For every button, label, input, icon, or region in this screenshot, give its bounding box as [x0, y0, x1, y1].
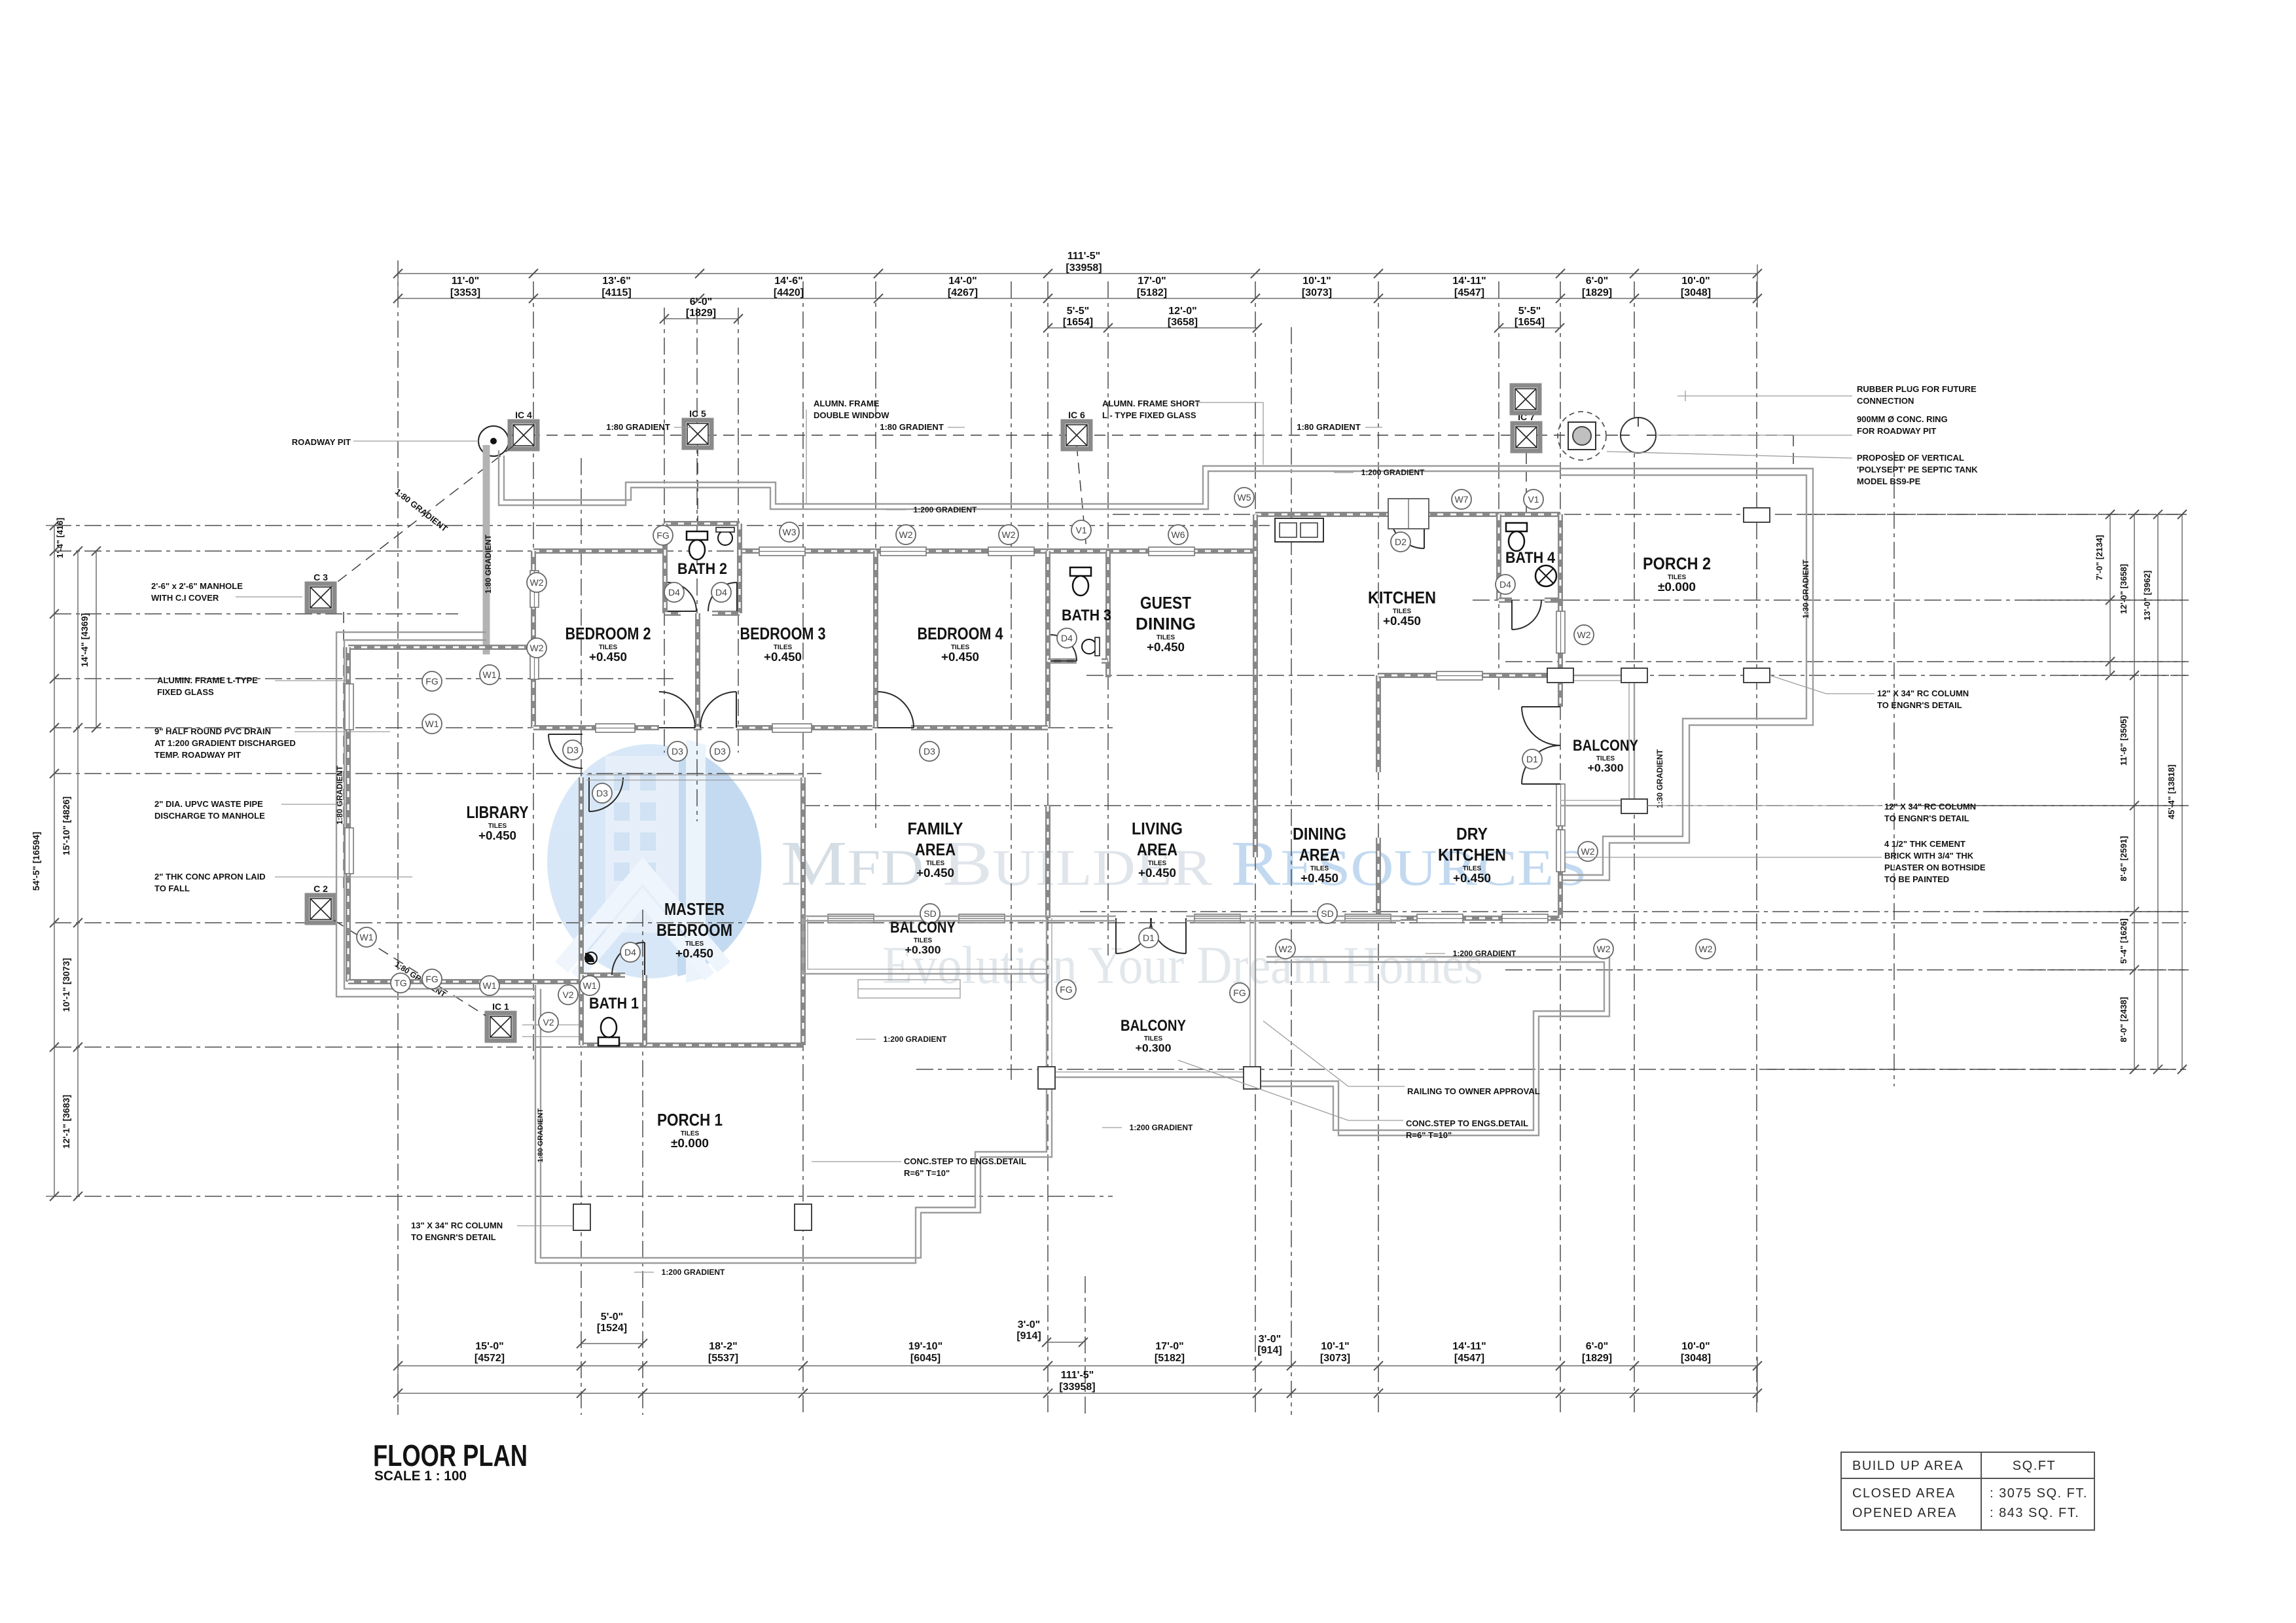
svg-text:W1: W1 [360, 932, 374, 942]
svg-text:17'-0": 17'-0" [1138, 276, 1166, 287]
svg-text:6'-0": 6'-0" [690, 296, 713, 308]
svg-text:KITCHEN: KITCHEN [1438, 845, 1506, 865]
svg-text:D3: D3 [672, 746, 683, 757]
svg-text:D4: D4 [1061, 633, 1073, 643]
svg-text:MASTER: MASTER [664, 899, 725, 919]
svg-text:+0.450: +0.450 [1383, 615, 1421, 628]
svg-text:BATH 3: BATH 3 [1062, 607, 1111, 624]
svg-text:AREA: AREA [915, 840, 956, 859]
svg-text:BATH 2: BATH 2 [677, 560, 727, 578]
svg-text:: 3075 SQ. FT.: : 3075 SQ. FT. [1990, 1486, 2088, 1501]
svg-text:ALUMN. FRAME: ALUMN. FRAME [814, 399, 880, 408]
svg-text:D1: D1 [1526, 754, 1538, 764]
svg-text:[4572]: [4572] [475, 1353, 505, 1364]
svg-text:CONNECTION: CONNECTION [1857, 396, 1914, 406]
svg-text:W1: W1 [583, 980, 597, 991]
svg-text:D4: D4 [1499, 579, 1511, 590]
svg-text:+0.450: +0.450 [916, 866, 954, 880]
svg-text:CONC.STEP TO ENGS.DETAIL: CONC.STEP TO ENGS.DETAIL [904, 1156, 1026, 1166]
svg-text:1:200 GRADIENT: 1:200 GRADIENT [1361, 468, 1425, 477]
svg-text:900MM Ø CONC. RING: 900MM Ø CONC. RING [1857, 414, 1948, 424]
svg-text:W7: W7 [1455, 494, 1469, 505]
svg-text:C 3: C 3 [314, 572, 328, 582]
svg-text:D4: D4 [668, 587, 680, 597]
svg-text:1:80 GRADIENT: 1:80 GRADIENT [484, 534, 493, 594]
svg-text:FIXED GLASS: FIXED GLASS [157, 687, 214, 697]
svg-text:V1: V1 [1528, 494, 1539, 505]
svg-text:2" THK CONC APRON LAID: 2" THK CONC APRON LAID [154, 872, 266, 882]
svg-text:DOUBLE WINDOW: DOUBLE WINDOW [814, 410, 889, 420]
svg-text:FG: FG [1060, 984, 1072, 995]
svg-text:1:80 GRADIENT: 1:80 GRADIENT [537, 1108, 545, 1162]
svg-text:5'-5": 5'-5" [1518, 306, 1541, 317]
svg-text:1:80 GRADIENT: 1:80 GRADIENT [606, 422, 670, 432]
svg-text:BUILD UP AREA: BUILD UP AREA [1852, 1459, 1964, 1473]
svg-text:BALCONY: BALCONY [890, 919, 956, 936]
svg-text:W5: W5 [1238, 492, 1251, 503]
svg-text:+0.450: +0.450 [478, 829, 516, 842]
svg-text:[1524]: [1524] [597, 1323, 627, 1334]
svg-text:[1829]: [1829] [686, 308, 716, 319]
svg-text:[5182]: [5182] [1155, 1353, 1185, 1364]
svg-text:14'-4" [4369]: 14'-4" [4369] [79, 613, 90, 667]
svg-text:+0.300: +0.300 [905, 944, 941, 956]
svg-text:[914]: [914] [1257, 1345, 1282, 1356]
svg-text:BALCONY: BALCONY [1121, 1017, 1186, 1035]
svg-text:±0.000: ±0.000 [1658, 580, 1696, 594]
svg-text:12" X 34" RC COLUMN: 12" X 34" RC COLUMN [1884, 802, 1976, 811]
svg-text:BEDROOM 3: BEDROOM 3 [740, 624, 826, 643]
svg-text:FG: FG [656, 530, 669, 541]
svg-text:DINING: DINING [1136, 614, 1196, 633]
svg-text:PORCH 2: PORCH 2 [1643, 554, 1711, 573]
svg-text:W1: W1 [483, 669, 497, 680]
svg-text:13" X 34" RC COLUMN: 13" X 34" RC COLUMN [411, 1221, 503, 1230]
svg-text:[3658]: [3658] [1168, 317, 1198, 328]
svg-text:OPENED AREA: OPENED AREA [1852, 1506, 1957, 1520]
svg-text:R=6" T=10": R=6" T=10" [1406, 1130, 1452, 1140]
svg-text:+0.450: +0.450 [1300, 872, 1338, 885]
svg-text:TG: TG [394, 978, 406, 988]
svg-text:3'-0": 3'-0" [1018, 1319, 1041, 1330]
svg-text:CONC.STEP TO ENGS.DETAIL: CONC.STEP TO ENGS.DETAIL [1406, 1118, 1528, 1128]
svg-text:10'-0": 10'-0" [1681, 1341, 1710, 1352]
svg-text:[4267]: [4267] [948, 287, 978, 298]
svg-text:5'-5": 5'-5" [1067, 306, 1090, 317]
svg-text:19'-10": 19'-10" [908, 1341, 942, 1352]
svg-text:W6: W6 [1172, 529, 1185, 540]
svg-text:RAILING TO OWNER APPROVAL: RAILING TO OWNER APPROVAL [1407, 1086, 1540, 1096]
svg-text:13'-6": 13'-6" [602, 276, 630, 287]
svg-text:W2: W2 [530, 643, 544, 653]
svg-text:TO ENGNR'S DETAIL: TO ENGNR'S DETAIL [1877, 700, 1962, 710]
svg-text:+0.450: +0.450 [941, 651, 979, 664]
svg-text:FLOOR PLAN: FLOOR PLAN [373, 1438, 528, 1472]
svg-text:[5182]: [5182] [1137, 287, 1167, 298]
svg-text:[6045]: [6045] [910, 1353, 941, 1364]
svg-text:TO BE PAINTED: TO BE PAINTED [1884, 874, 1949, 884]
svg-text:V2: V2 [562, 990, 573, 1000]
svg-text:111'-5": 111'-5" [1061, 1370, 1094, 1381]
svg-text:[5537]: [5537] [708, 1353, 738, 1364]
svg-text:[1829]: [1829] [1582, 1353, 1612, 1364]
svg-text:8'-6" [2591]: 8'-6" [2591] [2119, 836, 2128, 881]
svg-text:AREA: AREA [1137, 840, 1177, 859]
svg-text:1:200 GRADIENT: 1:200 GRADIENT [914, 505, 977, 514]
svg-text:IC 5: IC 5 [689, 408, 706, 419]
svg-text:W2: W2 [1577, 630, 1591, 640]
svg-text:BRICK WITH 3/4" THK: BRICK WITH 3/4" THK [1884, 851, 1974, 861]
svg-text:IC 4: IC 4 [515, 410, 532, 420]
svg-text:V2: V2 [543, 1017, 554, 1027]
svg-text:14'-0": 14'-0" [948, 276, 977, 287]
svg-text:GUEST: GUEST [1140, 593, 1191, 613]
svg-text:R=6" T=10": R=6" T=10" [904, 1168, 950, 1178]
svg-text:L - TYPE FIXED GLASS: L - TYPE FIXED GLASS [1102, 410, 1196, 420]
svg-text:TEMP. ROADWAY PIT: TEMP. ROADWAY PIT [154, 750, 241, 760]
svg-text:6'-0": 6'-0" [1586, 276, 1609, 287]
svg-text:ALUMN. FRAME SHORT: ALUMN. FRAME SHORT [1102, 399, 1200, 408]
svg-text:1:30 GRADIENT: 1:30 GRADIENT [1655, 749, 1664, 808]
svg-text:[1654]: [1654] [1515, 317, 1545, 328]
svg-text:11'-0": 11'-0" [452, 276, 480, 287]
svg-text:D4: D4 [624, 947, 636, 957]
svg-text:+0.450: +0.450 [675, 947, 713, 960]
svg-text:111'-5": 111'-5" [1067, 251, 1101, 262]
svg-text:[1829]: [1829] [1582, 287, 1612, 298]
svg-text:54'-5" [16594]: 54'-5" [16594] [31, 832, 41, 891]
svg-text:[3048]: [3048] [1681, 287, 1711, 298]
svg-text:10'-0": 10'-0" [1681, 276, 1710, 287]
svg-text:8'-0" [2438]: 8'-0" [2438] [2119, 997, 2128, 1042]
svg-text:1:80 GRADIENT: 1:80 GRADIENT [880, 422, 944, 432]
svg-text:BEDROOM 2: BEDROOM 2 [565, 624, 651, 643]
svg-text:SD: SD [1321, 908, 1333, 919]
svg-text:[33958]: [33958] [1059, 1382, 1095, 1393]
svg-text:1:80 GRADIENT: 1:80 GRADIENT [1297, 422, 1361, 432]
svg-text:+0.450: +0.450 [589, 651, 627, 664]
svg-text:14'-11": 14'-11" [1452, 276, 1486, 287]
svg-text:BEDROOM 4: BEDROOM 4 [918, 624, 1003, 643]
svg-text:+0.450: +0.450 [1147, 641, 1185, 654]
svg-text:2'-6" x 2'-6" MANHOLE: 2'-6" x 2'-6" MANHOLE [151, 581, 243, 591]
svg-text:17'-0": 17'-0" [1155, 1341, 1183, 1352]
svg-text:1:200 GRADIENT: 1:200 GRADIENT [1453, 949, 1516, 958]
svg-text:V1: V1 [1075, 525, 1086, 535]
svg-text:[3073]: [3073] [1302, 287, 1332, 298]
svg-text:: 843 SQ. FT.: : 843 SQ. FT. [1990, 1506, 2079, 1520]
svg-text:12'-0": 12'-0" [1168, 306, 1196, 317]
svg-text:D3: D3 [567, 745, 579, 755]
svg-text:1:80 GRADIENT: 1:80 GRADIENT [335, 765, 344, 825]
svg-text:5'-0": 5'-0" [601, 1311, 624, 1323]
svg-text:[4115]: [4115] [601, 287, 631, 298]
svg-text:D1: D1 [1143, 933, 1155, 943]
svg-text:SD: SD [924, 908, 936, 919]
svg-text:10'-1": 10'-1" [1321, 1341, 1349, 1352]
svg-text:W1: W1 [425, 719, 439, 729]
svg-text:TO ENGNR'S DETAIL: TO ENGNR'S DETAIL [411, 1232, 496, 1242]
svg-text:14'-11": 14'-11" [1452, 1341, 1486, 1352]
svg-text:CLOSED AREA: CLOSED AREA [1852, 1486, 1956, 1501]
svg-text:LIVING: LIVING [1132, 819, 1183, 838]
svg-text:D3: D3 [596, 788, 608, 798]
svg-text:[3353]: [3353] [450, 287, 480, 298]
svg-text:[4420]: [4420] [774, 287, 804, 298]
svg-text:LIBRARY: LIBRARY [467, 802, 529, 822]
svg-text:12'-1" [3683]: 12'-1" [3683] [61, 1095, 71, 1149]
svg-text:[4547]: [4547] [1454, 1353, 1484, 1364]
svg-text:PLASTER ON BOTHSIDE: PLASTER ON BOTHSIDE [1884, 863, 1986, 872]
svg-text:2" DIA. UPVC WASTE PIPE: 2" DIA. UPVC WASTE PIPE [154, 799, 263, 809]
svg-text:FG: FG [425, 676, 438, 687]
svg-text:W2: W2 [1581, 846, 1595, 857]
svg-text:D3: D3 [714, 746, 726, 757]
svg-text:1:200 GRADIENT: 1:200 GRADIENT [1130, 1123, 1193, 1132]
svg-text:12" X 34" RC COLUMN: 12" X 34" RC COLUMN [1877, 688, 1969, 698]
svg-text:W2: W2 [899, 529, 913, 540]
svg-text:RUBBER PLUG FOR FUTURE: RUBBER PLUG FOR FUTURE [1857, 384, 1977, 394]
svg-text:+0.450: +0.450 [1138, 866, 1176, 880]
svg-text:3'-0": 3'-0" [1259, 1334, 1282, 1345]
svg-text:D2: D2 [1395, 537, 1407, 547]
svg-text:[914]: [914] [1016, 1330, 1041, 1342]
svg-text:6'-0": 6'-0" [1586, 1341, 1609, 1352]
svg-text:W2: W2 [1002, 529, 1016, 540]
svg-text:ROADWAY PIT: ROADWAY PIT [292, 437, 351, 447]
svg-text:Evolution Your Dream Homes: Evolution Your Dream Homes [882, 935, 1483, 995]
svg-text:PROPOSED OF VERTICAL: PROPOSED OF VERTICAL [1857, 453, 1964, 463]
svg-text:WITH C.I COVER: WITH C.I COVER [151, 593, 219, 603]
svg-text:15'-10" [4826]: 15'-10" [4826] [61, 796, 71, 855]
svg-text:DINING: DINING [1293, 824, 1346, 844]
svg-text:1'-4" [416]: 1'-4" [416] [55, 518, 65, 558]
svg-text:+0.300: +0.300 [1588, 762, 1624, 774]
svg-text:W1: W1 [483, 980, 497, 991]
svg-text:W2: W2 [1597, 944, 1611, 954]
svg-text:+0.450: +0.450 [764, 651, 802, 664]
svg-text:TO ENGNR'S DETAIL: TO ENGNR'S DETAIL [1884, 813, 1969, 823]
svg-text:[3073]: [3073] [1320, 1353, 1350, 1364]
svg-text:BATH 4: BATH 4 [1505, 549, 1556, 567]
svg-text:15'-0": 15'-0" [475, 1341, 503, 1352]
svg-text:D3: D3 [924, 746, 935, 757]
svg-text:[33958]: [33958] [1066, 262, 1102, 274]
svg-text:W2: W2 [1699, 944, 1713, 954]
svg-text:PORCH 1: PORCH 1 [657, 1110, 723, 1130]
svg-text:MODEL BS9-PE: MODEL BS9-PE [1857, 476, 1921, 486]
svg-text:SCALE 1 : 100: SCALE 1 : 100 [374, 1469, 467, 1484]
svg-text:FG: FG [1233, 988, 1246, 998]
svg-text:DISCHARGE TO MANHOLE: DISCHARGE TO MANHOLE [154, 811, 265, 821]
svg-text:W2: W2 [1279, 944, 1293, 954]
svg-text:5'-4" [1626]: 5'-4" [1626] [2119, 918, 2128, 963]
svg-text:AT 1:200 GRADIENT DISCHARGED: AT 1:200 GRADIENT DISCHARGED [154, 738, 296, 748]
svg-text:4 1/2" THK CEMENT: 4 1/2" THK CEMENT [1884, 839, 1965, 849]
svg-text:BEDROOM: BEDROOM [656, 920, 732, 940]
svg-text:1:30 GRADIENT: 1:30 GRADIENT [1801, 559, 1810, 618]
svg-text:FG: FG [425, 974, 438, 984]
svg-text:+0.300: +0.300 [1136, 1042, 1172, 1054]
svg-text:[4547]: [4547] [1454, 287, 1484, 298]
svg-text:IC 6: IC 6 [1068, 410, 1085, 420]
svg-text:±0.000: ±0.000 [671, 1137, 709, 1150]
svg-text:9" HALF ROUND PVC DRAIN: 9" HALF ROUND PVC DRAIN [154, 726, 271, 736]
svg-text:D4: D4 [715, 587, 727, 597]
svg-text:10'-1" [3073]: 10'-1" [3073] [61, 958, 71, 1012]
svg-text:[3048]: [3048] [1681, 1353, 1711, 1364]
svg-text:14'-6": 14'-6" [774, 276, 802, 287]
svg-text:1:200 GRADIENT: 1:200 GRADIENT [662, 1268, 725, 1277]
svg-text:TO FALL: TO FALL [154, 883, 190, 893]
svg-text:18'-2": 18'-2" [709, 1341, 737, 1352]
svg-text:11'-6" [3505]: 11'-6" [3505] [2119, 716, 2128, 766]
svg-text:DRY: DRY [1456, 824, 1488, 844]
svg-text:W2: W2 [530, 577, 544, 588]
svg-text:ALUMIN. FRAME L-TYPE: ALUMIN. FRAME L-TYPE [157, 675, 258, 685]
svg-text:FOR ROADWAY PIT: FOR ROADWAY PIT [1857, 426, 1936, 436]
svg-text:FAMILY: FAMILY [908, 819, 963, 838]
svg-text:C 2: C 2 [314, 883, 328, 894]
svg-text:[1654]: [1654] [1063, 317, 1093, 328]
svg-text:13'-0" [3962]: 13'-0" [3962] [2142, 571, 2152, 620]
svg-text:1:200 GRADIENT: 1:200 GRADIENT [884, 1035, 947, 1044]
svg-text:10'-1": 10'-1" [1302, 276, 1331, 287]
svg-text:45'-4" [13818]: 45'-4" [13818] [2166, 764, 2176, 819]
svg-text:KITCHEN: KITCHEN [1368, 588, 1436, 607]
svg-text:+0.450: +0.450 [1453, 872, 1491, 885]
svg-text:IC 1: IC 1 [492, 1001, 509, 1012]
svg-text:7'-0" [2134]: 7'-0" [2134] [2094, 535, 2104, 580]
svg-text:12'-0" [3658]: 12'-0" [3658] [2119, 564, 2128, 614]
svg-text:BALCONY: BALCONY [1573, 737, 1638, 755]
svg-text:'POLYSEPT' PE SEPTIC TANK: 'POLYSEPT' PE SEPTIC TANK [1857, 465, 1978, 474]
svg-text:AREA: AREA [1299, 845, 1340, 865]
svg-text:W3: W3 [783, 527, 797, 537]
svg-text:SQ.FT: SQ.FT [2013, 1459, 2056, 1473]
svg-text:BATH 1: BATH 1 [589, 995, 639, 1012]
